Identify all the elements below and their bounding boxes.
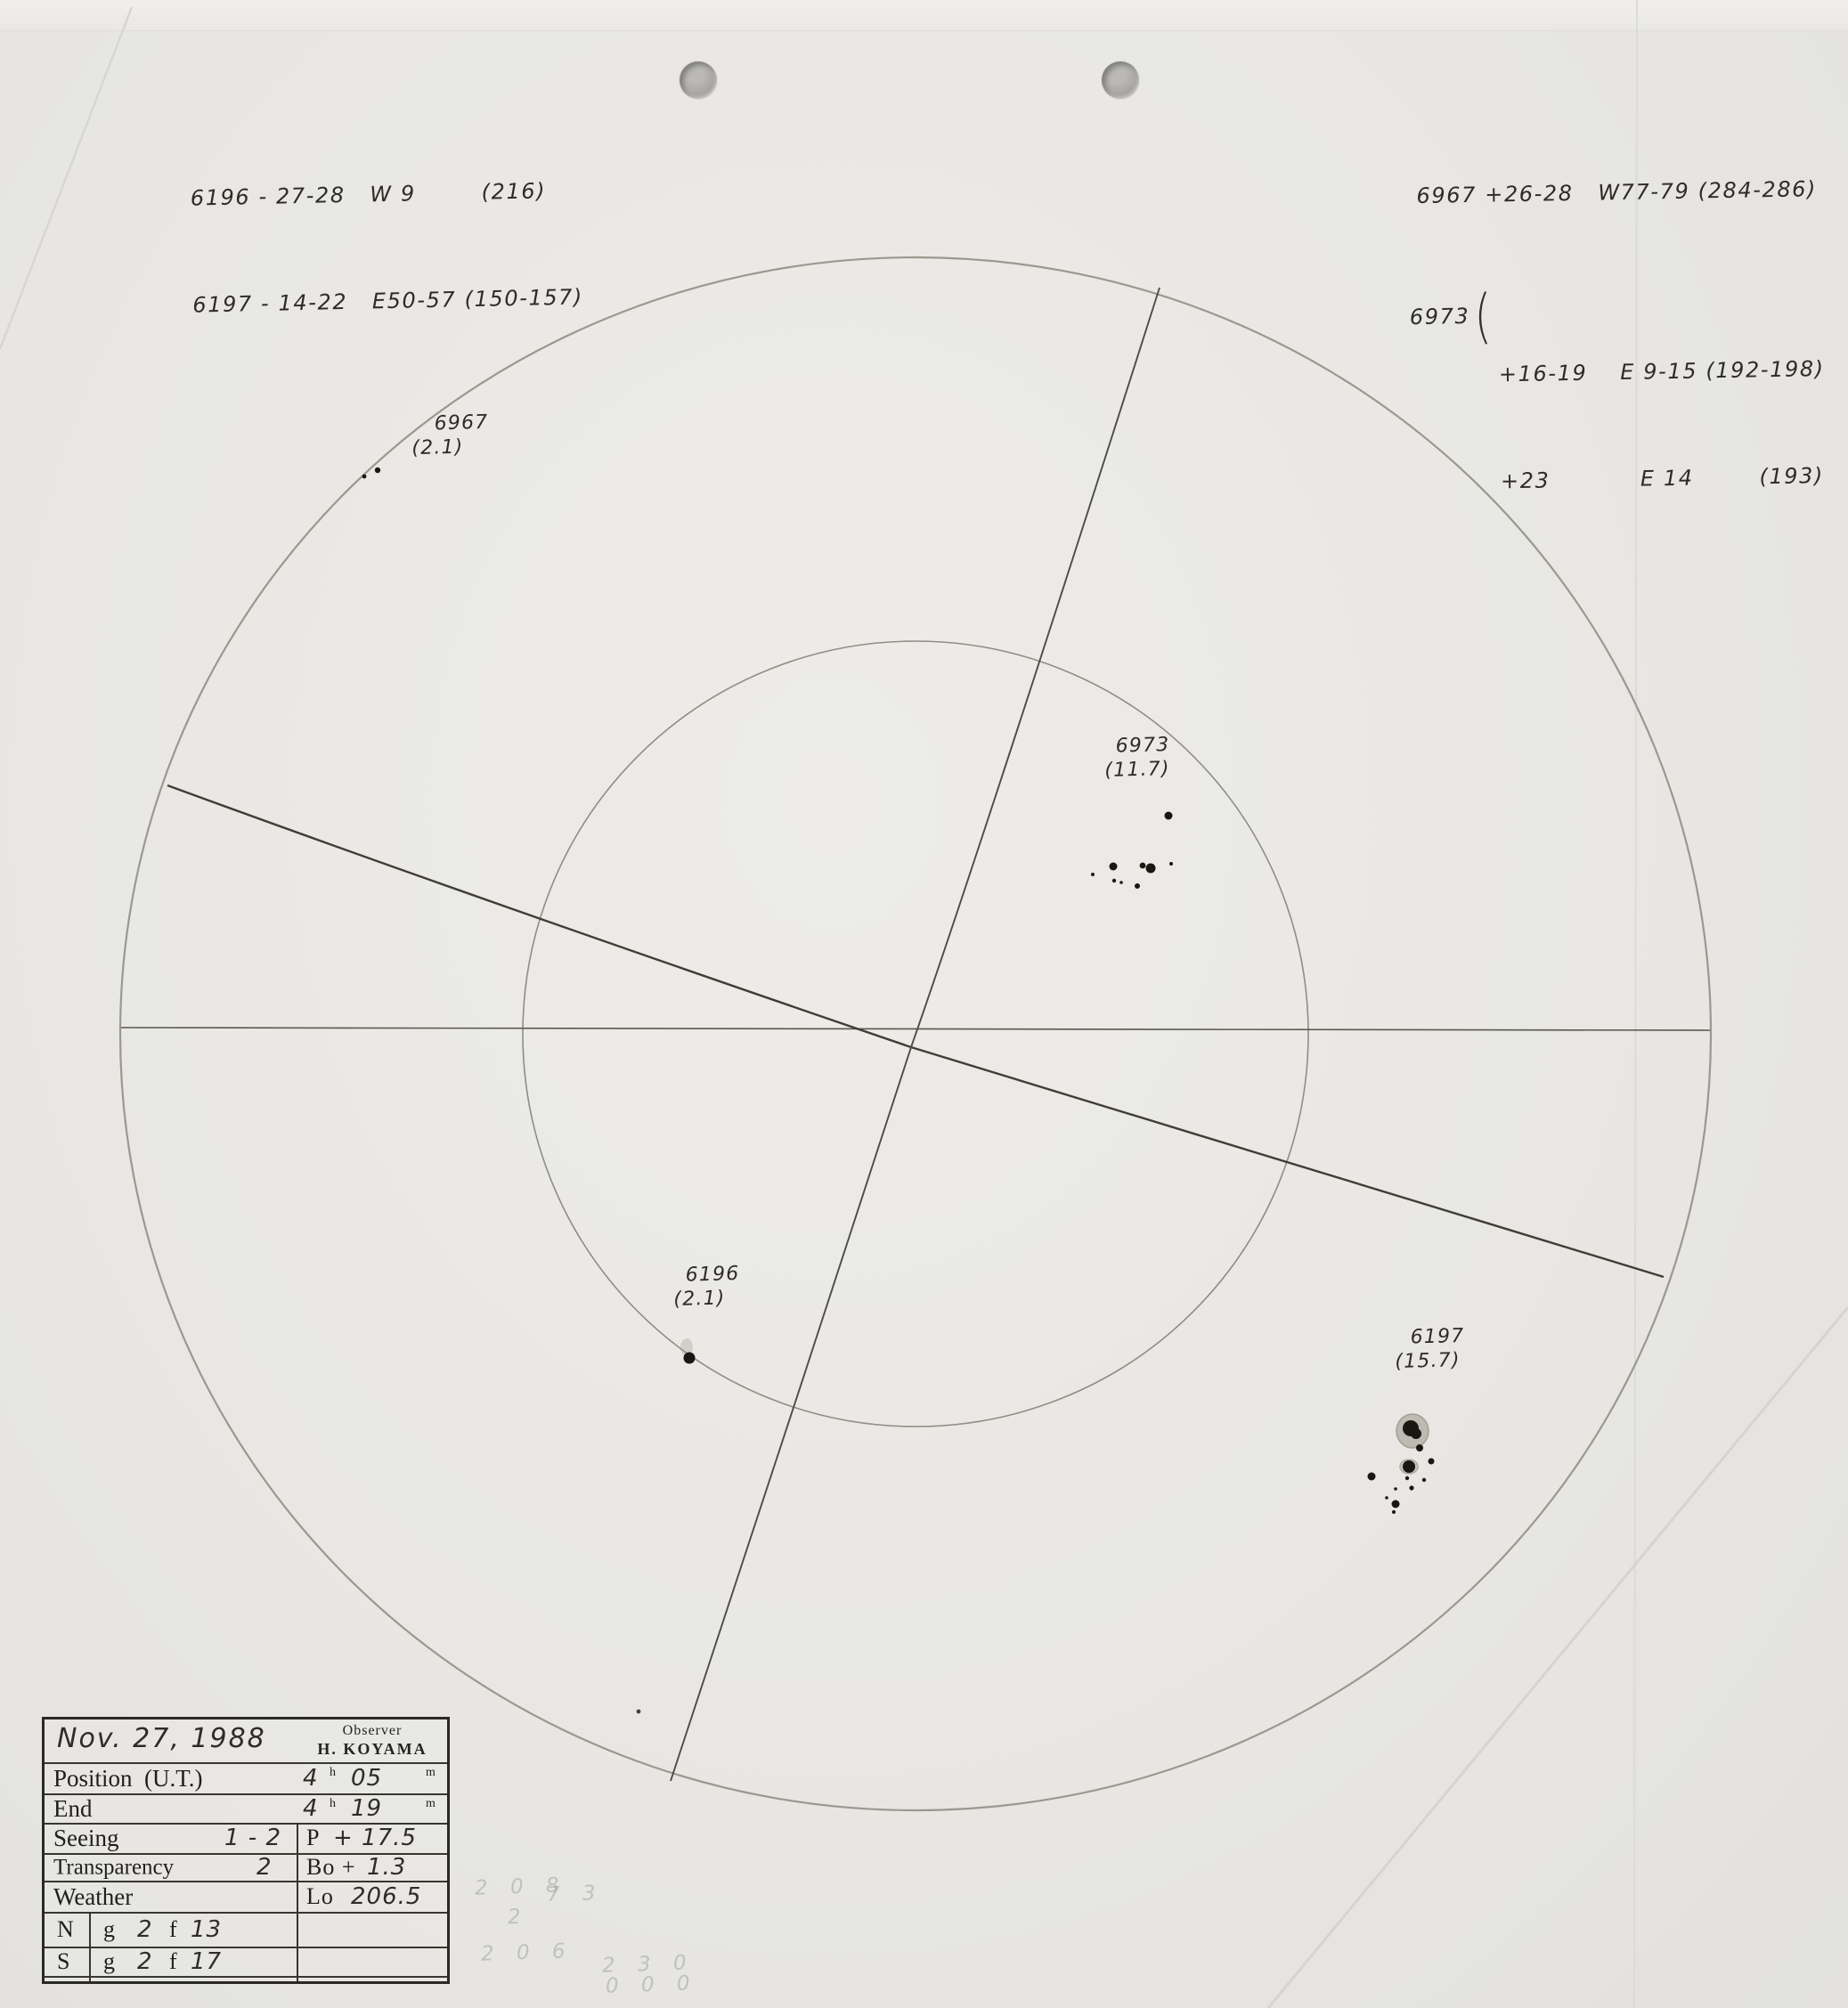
sunspot-dot-6196	[684, 1353, 696, 1364]
seeing-label: Seeing	[53, 1825, 119, 1852]
note-line-6973b: +23 E 14 (193)	[1501, 458, 1828, 499]
erased-pencil-mark: 7 3	[547, 1882, 604, 1906]
ink-speck	[637, 1710, 641, 1714]
table-row-south-counts: S g 2 f 17	[45, 1948, 447, 1978]
erased-pencil-mark: 0 0 0	[606, 1971, 698, 1998]
sunspot-dot-6973	[1091, 873, 1095, 876]
observer-block: Observer H. KOYAMA	[301, 1722, 444, 1758]
sunspot-dot-6967	[375, 467, 380, 473]
hour-sup: h	[330, 1797, 336, 1811]
table-row-date: Nov. 27, 1988 Observer H. KOYAMA	[45, 1719, 447, 1764]
end-hour: 4	[303, 1794, 319, 1821]
group-number: 6196	[672, 1262, 739, 1288]
hour-sup: h	[330, 1766, 336, 1780]
note-group-6973: 6973 ( +16-19 E 9-15 (192-198) +23 E 14 …	[1409, 278, 1828, 572]
sunspot-dot-6197	[1416, 1444, 1423, 1451]
note-line-6197: 6197 - 14-22 E50-57 (150-157)	[192, 279, 584, 322]
sunspot-group-label-6973: 6973(11.7)	[1103, 733, 1170, 783]
f-label: f	[169, 1915, 178, 1942]
observer-label: Observer	[301, 1722, 444, 1740]
observer-name: H. KOYAMA	[301, 1740, 444, 1758]
sunspot-dot-6967	[362, 475, 367, 479]
group-brace: (	[1474, 284, 1494, 350]
sunspot-group-label-6196: 6196(2.1)	[672, 1262, 740, 1312]
sunspot-dot-6973	[1146, 864, 1156, 874]
sunspot-dot-6197	[1411, 1428, 1421, 1439]
lo-label: Lo	[306, 1882, 334, 1909]
sunspot-dot-6197	[1392, 1500, 1400, 1508]
group-id: 6973	[1410, 298, 1470, 335]
group-lines: +16-19 E 9-15 (192-198) +23 E 14 (193)	[1497, 278, 1828, 570]
sunspot-dot-6973	[1112, 879, 1116, 882]
sunspot-group-label-6197: 6197(15.7)	[1394, 1324, 1465, 1374]
transparency-label: Transparency	[53, 1855, 174, 1880]
table-row-north-counts: N g 2 f 13	[45, 1914, 447, 1948]
table-ns-divider	[89, 1914, 91, 1981]
south-spots: 17	[191, 1947, 222, 1974]
lo-value: 206.5	[351, 1882, 421, 1909]
note-line-6196: 6196 - 27-28 W 9 (216)	[190, 172, 582, 215]
erased-pencil-mark: 2	[508, 1906, 530, 1930]
date-value: Nov. 27, 1988	[57, 1723, 266, 1754]
group-number: 6973	[1103, 733, 1169, 759]
bo-value: 1.3	[367, 1853, 406, 1880]
position-label: Position (U.T.)	[53, 1764, 203, 1792]
sunspot-dot-6197	[1429, 1459, 1435, 1465]
horizontal-axis-line	[121, 1028, 1710, 1030]
p-label: P	[306, 1825, 320, 1851]
f-label: f	[169, 1947, 178, 1974]
sunspot-dot-6973	[1110, 863, 1118, 871]
group-count: (2.1)	[411, 435, 489, 460]
g-label: g	[103, 1947, 116, 1974]
sunspot-dot-6197	[1405, 1476, 1409, 1480]
sunspot-penumbra-layer	[680, 1338, 1429, 1474]
south-label: S	[57, 1947, 70, 1974]
table-row-weather: Weather Lo 206.5	[45, 1882, 447, 1914]
central-meridian-line	[671, 288, 1160, 1781]
north-label: N	[57, 1915, 75, 1942]
sunspot-dot-6973	[1119, 881, 1123, 884]
group-count: (2.1)	[673, 1286, 740, 1312]
min-sup: m	[426, 1766, 436, 1780]
position-min: 05	[351, 1764, 382, 1791]
sunspot-dot-6197	[1385, 1496, 1388, 1500]
sunspot-dots-layer	[362, 467, 1435, 1514]
p-value: + 17.5	[333, 1825, 417, 1851]
group-number: 6967	[411, 411, 488, 436]
observation-table: Nov. 27, 1988 Observer H. KOYAMA Positio…	[42, 1717, 450, 1984]
group-count: (15.7)	[1395, 1348, 1465, 1374]
sunspot-dot-6197	[1403, 1460, 1415, 1473]
top-left-notes: 6196 - 27-28 W 9 (216) 6197 - 14-22 E50-…	[189, 101, 585, 394]
weather-label: Weather	[53, 1882, 133, 1910]
end-label: End	[53, 1794, 93, 1822]
sunspot-dot-6197	[1409, 1485, 1413, 1490]
sunspot-dot-6973	[1140, 863, 1146, 869]
table-row-position: Position (U.T.) 4 h 05 m	[45, 1764, 447, 1795]
sunspot-dot-6973	[1165, 812, 1173, 820]
note-line-6967: 6967 +26-28 W77-79 (284-286)	[1416, 171, 1821, 214]
bo-label: Bo +	[306, 1853, 356, 1880]
erased-pencil-mark: 2 0 6	[481, 1939, 574, 1966]
sunspot-dot-6197	[1392, 1510, 1396, 1514]
north-spots: 13	[191, 1915, 222, 1942]
group-number: 6197	[1394, 1324, 1464, 1350]
note-line-6973a: +16-19 E 9-15 (192-198)	[1499, 351, 1826, 392]
top-right-notes: 6967 +26-28 W77-79 (284-286) 6973 ( +16-…	[1415, 100, 1829, 643]
position-hour: 4	[303, 1764, 319, 1791]
north-groups: 2	[137, 1915, 153, 1942]
sunspot-dot-6197	[1368, 1473, 1376, 1481]
sunspot-dot-6973	[1135, 883, 1140, 889]
seeing-value: 1 - 2	[224, 1825, 281, 1851]
solar-equator-line	[167, 785, 1664, 1277]
end-min: 19	[351, 1794, 382, 1821]
g-label: g	[103, 1915, 116, 1942]
table-row-end: End 4 h 19 m	[45, 1795, 447, 1825]
group-count: (11.7)	[1104, 757, 1170, 783]
table-row-transparency: Transparency 2 Bo + 1.3	[45, 1855, 447, 1882]
sunspot-group-label-6967: 6967(2.1)	[411, 411, 489, 460]
sunspot-dot-6197	[1422, 1478, 1426, 1482]
transparency-value: 2	[256, 1853, 273, 1880]
table-column-divider	[297, 1825, 298, 1981]
table-row-seeing: Seeing 1 - 2 P + 17.5	[45, 1825, 447, 1855]
min-sup: m	[426, 1797, 436, 1811]
sunspot-dot-6197	[1394, 1487, 1397, 1491]
south-groups: 2	[137, 1947, 153, 1974]
sunspot-dot-6973	[1169, 862, 1173, 866]
scanned-observation-sheet: 6196 - 27-28 W 9 (216) 6197 - 14-22 E50-…	[0, 0, 1848, 2008]
